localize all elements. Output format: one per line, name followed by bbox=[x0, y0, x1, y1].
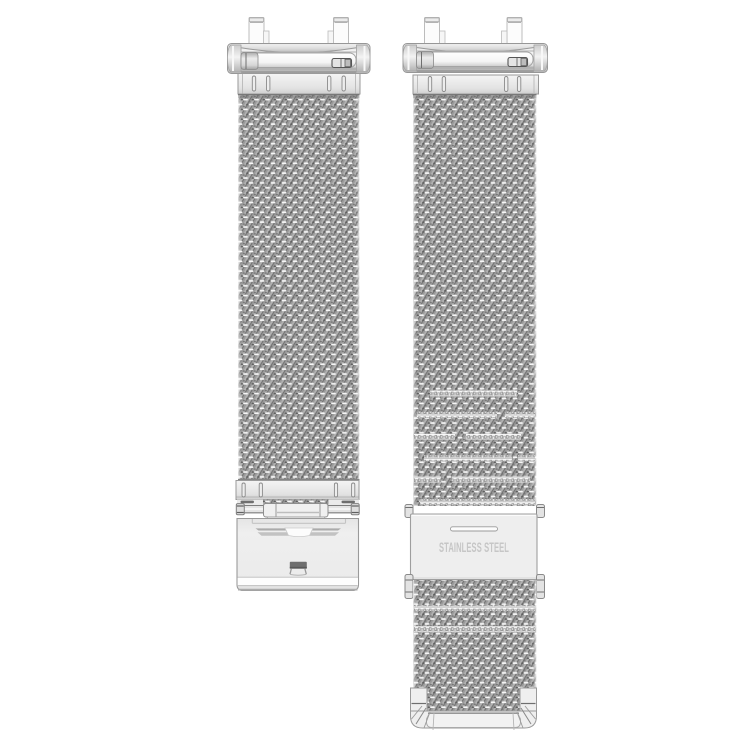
svg-text:STAINLESS STEEL: STAINLESS STEEL bbox=[439, 541, 509, 556]
